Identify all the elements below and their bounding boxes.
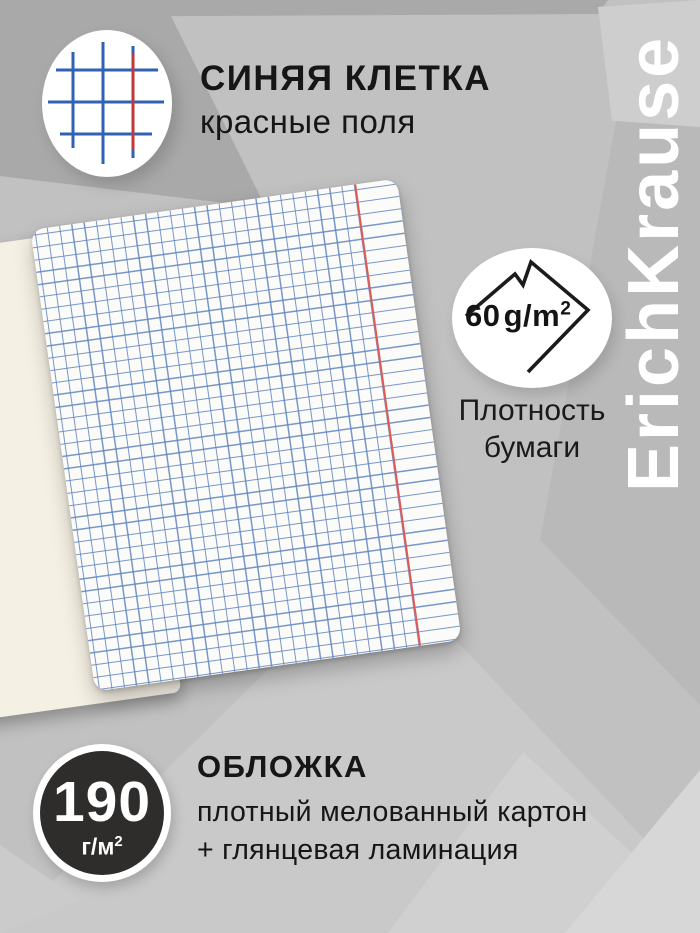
cover-text-block: ОБЛОЖКА плотный мелованный картон + глян… <box>197 748 587 869</box>
paper-weight-sup: 2 <box>560 299 571 320</box>
paper-density-label: Плотность бумаги <box>432 392 632 466</box>
cover-weight-unit: г/м2 <box>40 830 164 859</box>
paper-weight-value: 60 g/m2 <box>465 298 571 334</box>
notebook-page <box>30 179 461 692</box>
paper-density-line-1: Плотность <box>432 392 632 429</box>
cover-heading: ОБЛОЖКА <box>197 748 587 786</box>
cover-weight-unit-text: г/м <box>81 834 114 860</box>
cover-desc-line-1: плотный мелованный картон <box>197 794 587 832</box>
page-grid-cells <box>30 184 421 691</box>
paper-density-line-2: бумаги <box>432 429 632 466</box>
grid-cell-red-margin-icon <box>42 30 172 177</box>
grid-spec-badge <box>42 30 172 177</box>
header-text-block: СИНЯЯ КЛЕТКА красные поля <box>200 58 491 142</box>
page-subtitle: красные поля <box>200 102 491 142</box>
cover-desc-line-2: + глянцевая ламинация <box>197 832 587 870</box>
cover-weight-sup: 2 <box>114 833 122 850</box>
paper-weight-badge: 60 g/m2 <box>452 248 612 388</box>
paper-weight-number: 60 <box>465 298 500 333</box>
product-infographic: СИНЯЯ КЛЕТКА красные поля ErichKrause 60… <box>0 0 700 933</box>
cover-weight-badge-inner: 190 г/м2 <box>40 751 164 875</box>
cover-weight-badge: 190 г/м2 <box>33 744 171 882</box>
page-title: СИНЯЯ КЛЕТКА <box>200 58 491 100</box>
paper-weight-unit: g/m <box>504 298 561 333</box>
cover-weight-value: 190 <box>40 772 164 832</box>
